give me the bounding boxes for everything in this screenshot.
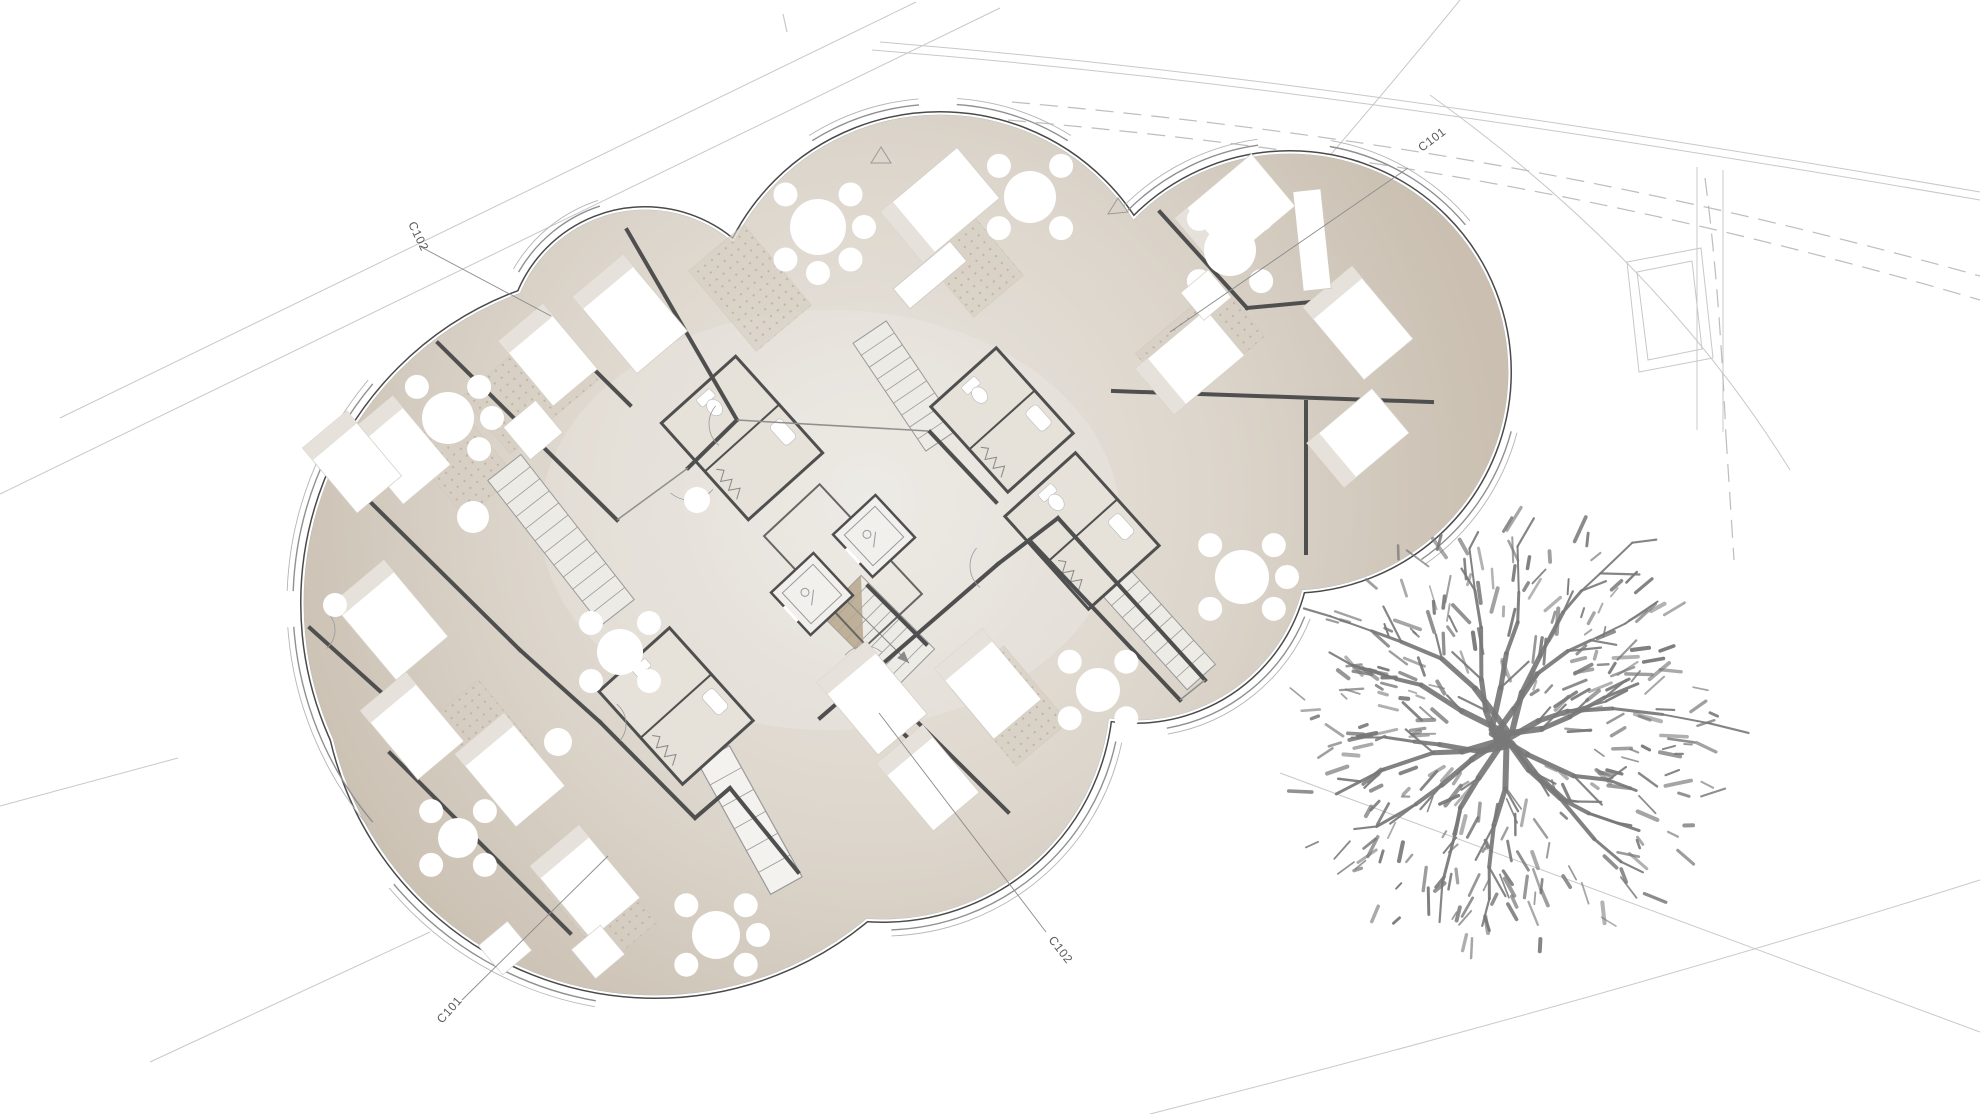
chair bbox=[1262, 533, 1286, 557]
tree-branch bbox=[1401, 642, 1442, 659]
table bbox=[1215, 550, 1269, 604]
tree-twig-dash bbox=[1507, 507, 1521, 530]
table bbox=[438, 818, 478, 858]
tree-twig bbox=[1709, 723, 1748, 733]
tree-twig-dash bbox=[1513, 566, 1515, 581]
tree-twig-dash bbox=[1400, 698, 1408, 699]
tree-twig bbox=[1518, 518, 1534, 546]
tree-twig-dash bbox=[1417, 695, 1425, 698]
tree-twig-dash bbox=[1473, 633, 1475, 649]
tree-twig-dash bbox=[1423, 867, 1426, 890]
tree-branch bbox=[1383, 753, 1433, 770]
tree-twig-dash bbox=[1393, 918, 1399, 924]
tree-twig-dash bbox=[1306, 842, 1318, 848]
tree-twig-dash bbox=[1471, 938, 1472, 958]
chair bbox=[1198, 533, 1222, 557]
chair bbox=[467, 437, 491, 461]
chair bbox=[1187, 207, 1211, 231]
tree-twig-dash bbox=[1668, 739, 1694, 743]
tree-twig-dash bbox=[1290, 688, 1304, 700]
tree-twig-dash bbox=[1575, 517, 1586, 541]
tree-twig-dash bbox=[1453, 605, 1469, 622]
tree-twig-dash bbox=[1568, 730, 1591, 732]
chair bbox=[1249, 269, 1273, 293]
tree-twig-dash bbox=[1636, 579, 1652, 593]
tree-twig-dash bbox=[1533, 869, 1541, 891]
tree-twig-dash bbox=[1348, 733, 1363, 734]
tree-twig-dash bbox=[1661, 735, 1687, 736]
tree-twig-dash bbox=[1485, 916, 1488, 933]
tree-twig-dash bbox=[1502, 828, 1508, 839]
neighbor-building-outline bbox=[1627, 248, 1713, 372]
table bbox=[1204, 224, 1256, 276]
tree-twig-dash bbox=[1380, 851, 1383, 862]
tree-twig-dash bbox=[1591, 553, 1600, 560]
tree-twig bbox=[1354, 826, 1376, 829]
tree-twig-dash bbox=[1587, 533, 1588, 546]
tree-twig-dash bbox=[1534, 819, 1547, 837]
chair bbox=[674, 893, 698, 917]
tree-twig-dash bbox=[1327, 767, 1347, 774]
site-line bbox=[0, 758, 178, 806]
tree-twig-dash bbox=[1311, 716, 1318, 719]
tree-twig bbox=[1469, 532, 1478, 549]
chair bbox=[579, 669, 603, 693]
tree-twig-dash bbox=[1569, 866, 1576, 880]
tree-twig-dash bbox=[1349, 735, 1371, 740]
survey-tick bbox=[783, 14, 787, 32]
table bbox=[692, 911, 740, 959]
tree-twig-dash bbox=[1613, 657, 1638, 658]
tree-twig-dash bbox=[1568, 579, 1569, 594]
section-marker-label: C102 bbox=[1046, 933, 1076, 966]
tree-twig-dash bbox=[1524, 583, 1528, 590]
tree-twig-dash bbox=[1492, 569, 1493, 588]
tree-twig-dash bbox=[1457, 907, 1460, 920]
tree-twig-dash bbox=[1626, 674, 1652, 675]
tree-twig-dash bbox=[1592, 784, 1598, 788]
tree-twig-dash bbox=[1354, 868, 1361, 870]
tree-branch bbox=[1505, 746, 1506, 789]
tree-twig-dash bbox=[1379, 706, 1397, 711]
tree-twig-dash bbox=[1448, 627, 1454, 636]
tree-twig-dash bbox=[1710, 713, 1718, 716]
tree-twig-dash bbox=[1521, 800, 1526, 826]
chair bbox=[852, 215, 876, 239]
tree-twig-dash bbox=[1660, 646, 1674, 651]
chair bbox=[734, 953, 758, 977]
tree-twig-dash bbox=[1561, 813, 1567, 818]
tree-twig-dash bbox=[1403, 789, 1409, 795]
tree-twig-dash bbox=[1492, 894, 1497, 904]
tree-branch bbox=[1600, 543, 1632, 574]
tree-twig-dash bbox=[1612, 728, 1625, 736]
tree-twig-dash bbox=[1581, 608, 1584, 617]
chair bbox=[839, 182, 863, 206]
tree-twig-dash bbox=[1478, 548, 1482, 569]
tree-twig-dash bbox=[1371, 786, 1382, 791]
tree-twig-dash bbox=[1531, 690, 1538, 694]
tree-twig-dash bbox=[1552, 612, 1555, 622]
tree-branch bbox=[1518, 592, 1519, 622]
chair bbox=[987, 154, 1011, 178]
tree-twig-dash bbox=[1524, 876, 1527, 897]
tree-branch bbox=[1416, 785, 1442, 804]
chair bbox=[419, 799, 443, 823]
tree-twig-dash bbox=[1366, 579, 1376, 588]
tree-branch bbox=[1663, 714, 1710, 723]
tree-twig-dash bbox=[1428, 612, 1434, 632]
tree-twig-dash bbox=[1657, 709, 1675, 710]
tree-twig bbox=[1632, 540, 1656, 543]
tree-twig-dash bbox=[1395, 620, 1420, 629]
tree-twig-dash bbox=[1289, 791, 1312, 792]
tree-twig-dash bbox=[1512, 896, 1517, 907]
tree-twig-dash bbox=[1547, 843, 1550, 858]
tree-twig-dash bbox=[1595, 651, 1597, 658]
tree-twig-dash bbox=[1528, 902, 1537, 925]
tree-twig-dash bbox=[1595, 750, 1604, 757]
tree-branch bbox=[1518, 546, 1519, 592]
tree-twig-dash bbox=[1517, 852, 1528, 870]
tree-twig-dash bbox=[1401, 580, 1406, 596]
tree-twig-dash bbox=[1588, 613, 1594, 624]
tree-twig-dash bbox=[1338, 670, 1348, 678]
tree-twig-dash bbox=[1600, 773, 1613, 774]
tree-twig-dash bbox=[1546, 685, 1552, 692]
chair bbox=[1058, 650, 1082, 674]
tree-twig-dash bbox=[1399, 842, 1403, 861]
chair bbox=[839, 248, 863, 272]
tree-twig bbox=[1304, 608, 1331, 616]
tree-twig-dash bbox=[1632, 648, 1649, 650]
chair bbox=[480, 406, 504, 430]
chair bbox=[674, 953, 698, 977]
tree-twig-dash bbox=[1622, 757, 1638, 761]
tree-twig-dash bbox=[1642, 746, 1649, 750]
tree-twig-dash bbox=[1665, 780, 1691, 785]
table bbox=[790, 199, 846, 255]
tree-twig-dash bbox=[1372, 906, 1379, 921]
table bbox=[597, 629, 643, 675]
tree-twig-dash bbox=[1456, 869, 1458, 883]
tree-twig-dash bbox=[1381, 683, 1396, 687]
table bbox=[1004, 171, 1056, 223]
tree-twig-dash bbox=[1396, 883, 1401, 888]
tree-branch bbox=[1589, 813, 1639, 830]
tree-twig-dash bbox=[1358, 850, 1376, 862]
tree-twig-dash bbox=[1318, 748, 1332, 757]
tree-twig-dash bbox=[1338, 862, 1354, 874]
tree-twig-dash bbox=[1679, 793, 1689, 796]
chair bbox=[637, 611, 661, 635]
tree-twig-dash bbox=[1563, 876, 1570, 887]
section-marker-label: C101 bbox=[1415, 125, 1448, 155]
tree-twig-dash bbox=[1693, 687, 1708, 690]
tree-twig-dash bbox=[1400, 767, 1416, 773]
tree-twig-dash bbox=[1428, 888, 1429, 915]
tree-twig-dash bbox=[1644, 658, 1664, 662]
tree-twig-dash bbox=[1445, 576, 1450, 602]
tree-twig-dash bbox=[1701, 782, 1713, 788]
tree-branch bbox=[1330, 616, 1371, 631]
site-line bbox=[1150, 880, 1980, 1114]
chair bbox=[579, 611, 603, 635]
tree-twig-dash bbox=[1378, 667, 1388, 670]
tree-twig-dash bbox=[1664, 603, 1684, 615]
tree-twig-dash bbox=[1478, 803, 1480, 821]
tree-twig-dash bbox=[1463, 935, 1467, 951]
tree-branch bbox=[1481, 679, 1485, 710]
chair bbox=[1058, 706, 1082, 730]
chair bbox=[806, 261, 830, 285]
tree-twig bbox=[1591, 640, 1616, 645]
side-table bbox=[684, 487, 710, 513]
tree-twig-dash bbox=[1464, 559, 1466, 579]
tree-twig-dash bbox=[1541, 890, 1548, 906]
tree-twig-dash bbox=[1534, 892, 1535, 904]
chair bbox=[1114, 706, 1138, 730]
tree-twig-dash bbox=[1598, 664, 1608, 665]
chair bbox=[1049, 154, 1073, 178]
chair bbox=[405, 437, 429, 461]
tree-twig-dash bbox=[1460, 540, 1468, 554]
tree-twig-dash bbox=[1329, 743, 1341, 747]
tree-twig-dash bbox=[1609, 663, 1615, 672]
tree-twig-dash bbox=[1613, 748, 1631, 749]
tree-twig-dash bbox=[1340, 689, 1363, 690]
site-line bbox=[150, 932, 430, 1062]
chair bbox=[637, 669, 661, 693]
table bbox=[422, 392, 474, 444]
tree-twig-dash bbox=[1639, 773, 1657, 786]
tree-twig-dash bbox=[1544, 639, 1546, 664]
tree-twig-dash bbox=[1411, 728, 1425, 730]
table bbox=[1076, 668, 1120, 712]
tree-twig-dash bbox=[1385, 628, 1392, 631]
chair bbox=[405, 375, 429, 399]
chair bbox=[419, 853, 443, 877]
chair bbox=[746, 923, 770, 947]
tree-twig-dash bbox=[1639, 796, 1656, 813]
tree-twig-dash bbox=[1572, 658, 1586, 661]
section-marker-label: C101 bbox=[434, 994, 465, 1026]
tree-twig-dash bbox=[1668, 832, 1678, 837]
tree-twig-dash bbox=[1338, 779, 1360, 782]
tree-twig-dash bbox=[1540, 939, 1541, 951]
tree-twig-dash bbox=[1388, 823, 1395, 838]
tree-twig-dash bbox=[1467, 818, 1478, 838]
floor-plan-canvas: C102C101C101C102 bbox=[0, 0, 1980, 1114]
tree-twig-dash bbox=[1697, 743, 1716, 752]
tree-twig-dash bbox=[1469, 875, 1479, 896]
chair bbox=[1198, 597, 1222, 621]
tree-twig-dash bbox=[1607, 714, 1623, 723]
tree-twig-dash bbox=[1663, 746, 1675, 749]
tree-twig-dash bbox=[1678, 850, 1694, 864]
tree-twig-dash bbox=[1462, 898, 1473, 917]
tree-twig-dash bbox=[1340, 620, 1349, 622]
tree-twig-dash bbox=[1433, 601, 1434, 613]
chair bbox=[734, 893, 758, 917]
tree-branch bbox=[1433, 752, 1462, 753]
tree-twig-dash bbox=[1549, 551, 1550, 562]
tree-twig-dash bbox=[1564, 680, 1587, 689]
chair bbox=[1049, 216, 1073, 240]
chair bbox=[473, 799, 497, 823]
tree-twig-dash bbox=[1478, 583, 1481, 603]
tree-twig bbox=[1581, 581, 1605, 591]
tree-twig-dash bbox=[1557, 609, 1559, 634]
side-table bbox=[457, 501, 489, 533]
tree-branch bbox=[1386, 737, 1415, 741]
chair bbox=[473, 853, 497, 877]
tree-twig-dash bbox=[1599, 604, 1603, 613]
tree-twig-dash bbox=[1413, 731, 1420, 734]
tree-twig-dash bbox=[1326, 724, 1343, 736]
tree-twig-dash bbox=[1327, 619, 1338, 622]
tree-branch bbox=[1442, 659, 1475, 689]
chair bbox=[1275, 565, 1299, 589]
tree-twig-dash bbox=[1491, 588, 1497, 611]
tree-twig-dash bbox=[1409, 691, 1416, 693]
tree-twig-dash bbox=[1443, 633, 1444, 653]
tree-twig-dash bbox=[1527, 557, 1529, 569]
tree-branch bbox=[1414, 742, 1439, 745]
tree-twig-dash bbox=[1354, 744, 1372, 748]
side-table bbox=[323, 593, 347, 617]
chair bbox=[467, 375, 491, 399]
side-table bbox=[544, 728, 572, 756]
chair bbox=[1114, 650, 1138, 674]
tree-twig-dash bbox=[1532, 852, 1538, 868]
tree-twig-dash bbox=[1403, 703, 1422, 721]
tree-twig-dash bbox=[1360, 725, 1367, 728]
tree-branch bbox=[1605, 684, 1638, 698]
tree-twig-dash bbox=[1665, 770, 1679, 775]
tree-twig-dash bbox=[1541, 879, 1542, 893]
neighbor-building-outline bbox=[1637, 261, 1702, 360]
tree-twig-dash bbox=[1621, 877, 1637, 898]
tree-twig-dash bbox=[1461, 816, 1465, 833]
chair bbox=[773, 182, 797, 206]
tree-twig-dash bbox=[1585, 630, 1592, 635]
tree-twig-dash bbox=[1602, 903, 1604, 924]
tree-branch bbox=[1460, 778, 1478, 808]
chair bbox=[987, 216, 1011, 240]
tree-twig-dash bbox=[1608, 786, 1630, 789]
site-boundary-dashed bbox=[1726, 436, 1734, 560]
tree-twig-dash bbox=[1343, 754, 1358, 755]
tree-twig-dash bbox=[1701, 789, 1725, 797]
tree-twig-dash bbox=[1406, 855, 1412, 862]
tree-twig-dash bbox=[1533, 636, 1536, 662]
chair bbox=[773, 248, 797, 272]
tree-twig-dash bbox=[1376, 685, 1382, 689]
chair bbox=[1262, 597, 1286, 621]
tree-twig-dash bbox=[1691, 701, 1706, 712]
tree-twig-dash bbox=[1644, 894, 1665, 903]
tree-twig-dash bbox=[1379, 692, 1387, 694]
tree-twig-dash bbox=[1302, 709, 1320, 710]
floor-plan-page: C102C101C101C102 bbox=[0, 0, 1980, 1114]
chair bbox=[1249, 207, 1273, 231]
tree-twig-dash bbox=[1366, 807, 1371, 816]
tree-twig-dash bbox=[1341, 694, 1346, 699]
tree-twig-dash bbox=[1448, 874, 1451, 889]
tree-twig-dash bbox=[1334, 841, 1350, 859]
